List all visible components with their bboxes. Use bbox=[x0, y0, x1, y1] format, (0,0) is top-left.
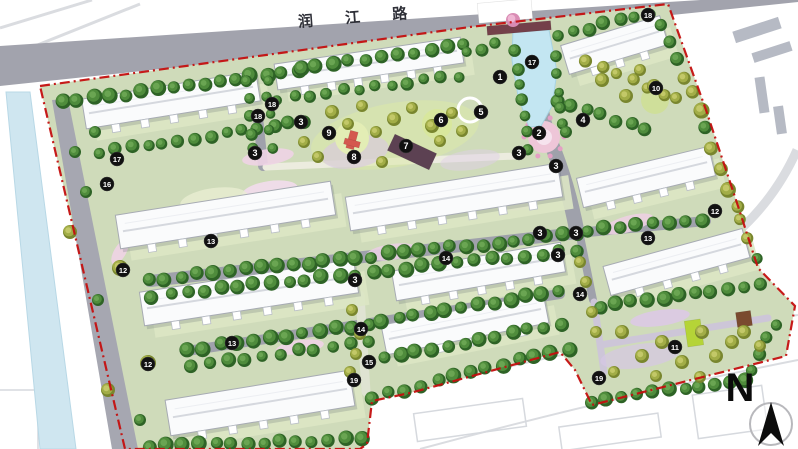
tree-highlight bbox=[289, 260, 295, 266]
tree-highlight bbox=[521, 112, 525, 116]
tree-highlight bbox=[383, 266, 389, 272]
tree-highlight bbox=[146, 293, 152, 299]
tree-highlight bbox=[168, 290, 173, 295]
tree-highlight bbox=[300, 138, 305, 143]
entrance-porch bbox=[171, 320, 180, 329]
tree-highlight bbox=[420, 75, 425, 80]
feature-structure bbox=[736, 311, 753, 328]
tree-highlight bbox=[384, 388, 389, 393]
entrance-porch bbox=[477, 286, 486, 295]
tree-highlight bbox=[672, 54, 678, 60]
marker-3: 3 bbox=[294, 115, 308, 129]
tree-highlight bbox=[376, 316, 383, 323]
marker-3: 3 bbox=[248, 146, 262, 160]
tree-highlight bbox=[213, 439, 218, 444]
tree-highlight bbox=[599, 63, 604, 68]
tree-highlight bbox=[636, 66, 641, 71]
tree-highlight bbox=[705, 287, 711, 293]
tree-highlight bbox=[356, 87, 360, 91]
tree-highlight bbox=[723, 285, 729, 291]
entrance-porch bbox=[663, 279, 673, 289]
tree-highlight bbox=[266, 278, 273, 285]
tree-highlight bbox=[206, 359, 211, 364]
tree-highlight bbox=[347, 339, 353, 345]
tree-highlight bbox=[159, 275, 165, 281]
entrance-porch bbox=[259, 420, 268, 429]
tree-highlight bbox=[461, 340, 466, 345]
tree-highlight bbox=[470, 255, 476, 261]
tree-highlight bbox=[466, 367, 472, 373]
tree-highlight bbox=[626, 296, 632, 302]
tree-highlight bbox=[666, 38, 671, 43]
marker-15: 15 bbox=[362, 355, 376, 369]
tree-highlight bbox=[514, 65, 519, 70]
marker-19: 19 bbox=[347, 373, 361, 387]
tree-highlight bbox=[674, 290, 680, 296]
tree-highlight bbox=[681, 217, 686, 222]
entrance-porch bbox=[293, 302, 302, 311]
tree-highlight bbox=[417, 260, 423, 266]
marker-13: 13 bbox=[641, 231, 655, 245]
tree-highlight bbox=[413, 245, 419, 251]
marker-number: 3 bbox=[573, 228, 578, 238]
entrance-porch bbox=[407, 220, 416, 229]
entrance-porch bbox=[301, 219, 310, 228]
tree-highlight bbox=[331, 322, 337, 328]
tree-highlight bbox=[323, 436, 329, 442]
tree-highlight bbox=[581, 57, 587, 63]
tree-highlight bbox=[716, 165, 722, 171]
tree-highlight bbox=[305, 259, 312, 266]
tree-highlight bbox=[408, 311, 413, 316]
tree-highlight bbox=[91, 128, 96, 133]
tree-highlight bbox=[556, 89, 560, 93]
tree-highlight bbox=[286, 278, 291, 283]
entrance-porch bbox=[270, 224, 279, 233]
tree-highlight bbox=[740, 283, 745, 288]
tree-highlight bbox=[479, 242, 485, 248]
tree-highlight bbox=[688, 87, 694, 93]
marker-6: 6 bbox=[434, 113, 448, 127]
tree-highlight bbox=[611, 117, 617, 123]
tree-highlight bbox=[378, 158, 383, 163]
tree-highlight bbox=[367, 394, 373, 400]
tree-highlight bbox=[276, 68, 282, 74]
tree-highlight bbox=[515, 354, 521, 360]
tree-highlight bbox=[474, 334, 480, 340]
tree-highlight bbox=[346, 368, 351, 373]
entrance-porch bbox=[438, 216, 447, 225]
tree-highlight bbox=[597, 75, 603, 81]
tree-highlight bbox=[71, 96, 77, 102]
context-road-line bbox=[0, 0, 92, 28]
tree-highlight bbox=[136, 86, 142, 92]
tree-highlight bbox=[773, 321, 778, 326]
tree-highlight bbox=[630, 75, 635, 80]
marker-number: 18 bbox=[644, 11, 652, 20]
marker-16: 16 bbox=[100, 177, 114, 191]
tree-highlight bbox=[478, 46, 483, 51]
marker-number: 13 bbox=[207, 237, 215, 246]
tree-highlight bbox=[649, 219, 654, 224]
tree-highlight bbox=[756, 280, 762, 286]
tree-highlight bbox=[246, 95, 251, 100]
marker-3: 3 bbox=[533, 226, 547, 240]
marker-number: 8 bbox=[351, 152, 356, 162]
tree-highlight bbox=[557, 320, 563, 326]
flower-dot bbox=[548, 115, 553, 120]
tree-highlight bbox=[480, 363, 486, 369]
entrance-porch bbox=[615, 58, 625, 68]
tree-highlight bbox=[762, 333, 767, 338]
marker-12: 12 bbox=[116, 263, 130, 277]
tree-highlight bbox=[596, 303, 602, 309]
tree-highlight bbox=[585, 25, 591, 31]
tree-highlight bbox=[642, 295, 648, 301]
entrance-porch bbox=[421, 295, 430, 304]
tree-highlight bbox=[509, 327, 515, 333]
tree-highlight bbox=[723, 185, 730, 192]
tree-highlight bbox=[341, 433, 348, 440]
tree-highlight bbox=[592, 328, 597, 333]
tree-highlight bbox=[701, 123, 707, 129]
tree-highlight bbox=[352, 350, 357, 355]
tree-highlight bbox=[71, 148, 76, 153]
tree-highlight bbox=[400, 387, 406, 393]
marker-9: 9 bbox=[322, 126, 336, 140]
tree-highlight bbox=[727, 337, 733, 343]
marker-number: 12 bbox=[119, 266, 127, 275]
tree-highlight bbox=[524, 236, 529, 241]
tree-highlight bbox=[677, 357, 683, 363]
tree-highlight bbox=[462, 242, 468, 248]
tree-highlight bbox=[696, 105, 703, 112]
tree-highlight bbox=[226, 439, 232, 445]
tree-highlight bbox=[540, 324, 545, 329]
context-building-outline bbox=[0, 390, 38, 449]
marker-17: 17 bbox=[110, 152, 124, 166]
tree-highlight bbox=[396, 314, 401, 319]
entrance-porch bbox=[505, 281, 514, 290]
tree-highlight bbox=[503, 255, 508, 260]
tree-highlight bbox=[344, 120, 349, 125]
tree-highlight bbox=[58, 96, 64, 102]
marker-5: 5 bbox=[474, 105, 488, 119]
tree-highlight bbox=[348, 306, 353, 311]
tree-highlight bbox=[248, 336, 254, 342]
tree-highlight bbox=[110, 144, 116, 150]
entrance-porch bbox=[263, 306, 272, 315]
tree-highlight bbox=[186, 362, 192, 368]
entrance-porch bbox=[202, 316, 211, 325]
tree-highlight bbox=[224, 129, 229, 134]
tree-highlight bbox=[598, 18, 604, 24]
tree-highlight bbox=[153, 83, 160, 90]
tree-highlight bbox=[584, 106, 589, 111]
flower-dot bbox=[558, 146, 563, 151]
marker-number: 3 bbox=[555, 250, 560, 260]
tree-highlight bbox=[192, 268, 198, 274]
tree-highlight bbox=[237, 126, 242, 131]
tree-highlight bbox=[207, 133, 213, 139]
tree-highlight bbox=[617, 15, 623, 21]
tree-highlight bbox=[145, 443, 151, 449]
tree-highlight bbox=[710, 380, 716, 386]
tree-highlight bbox=[523, 128, 528, 133]
tree-highlight bbox=[657, 337, 663, 343]
tree-highlight bbox=[445, 242, 450, 247]
entrance-porch bbox=[449, 290, 458, 299]
marker-number: 14 bbox=[357, 325, 366, 334]
entrance-porch bbox=[685, 181, 695, 191]
marker-number: 7 bbox=[403, 141, 408, 151]
tree-highlight bbox=[261, 440, 266, 445]
tree-highlight bbox=[403, 79, 409, 85]
tree-highlight bbox=[554, 32, 559, 37]
marker-number: 4 bbox=[580, 115, 585, 125]
entrance-porch bbox=[468, 211, 477, 220]
entrance-porch bbox=[147, 243, 156, 252]
tree-highlight bbox=[309, 346, 315, 352]
tree-highlight bbox=[697, 327, 703, 333]
tree-highlight bbox=[426, 308, 433, 315]
tree-highlight bbox=[207, 268, 214, 275]
tree-highlight bbox=[621, 91, 627, 97]
tree-highlight bbox=[371, 82, 376, 87]
tree-highlight bbox=[544, 347, 551, 354]
marker-number: 12 bbox=[711, 207, 719, 216]
marker-3: 3 bbox=[569, 226, 583, 240]
entrance-porch bbox=[659, 187, 669, 197]
tree-highlight bbox=[224, 355, 230, 361]
tree-highlight bbox=[370, 267, 376, 273]
marker-number: 18 bbox=[268, 100, 276, 109]
tree-highlight bbox=[498, 361, 504, 367]
tree-highlight bbox=[435, 376, 441, 382]
marker-7: 7 bbox=[399, 139, 413, 153]
tree-highlight bbox=[617, 327, 623, 333]
entrance-porch bbox=[380, 74, 389, 83]
marker-number: 10 bbox=[652, 84, 660, 93]
context-building bbox=[751, 41, 792, 63]
tree-highlight bbox=[318, 256, 324, 262]
marker-number: 13 bbox=[228, 339, 236, 348]
marker-14: 14 bbox=[573, 287, 587, 301]
entrance-porch bbox=[232, 311, 241, 320]
entrance-porch bbox=[140, 119, 149, 128]
tree-highlight bbox=[630, 13, 635, 18]
tree-highlight bbox=[408, 104, 413, 109]
tree-highlight bbox=[588, 308, 593, 313]
tree-highlight bbox=[610, 298, 616, 304]
tree-highlight bbox=[296, 63, 303, 70]
marker-number: 3 bbox=[537, 228, 542, 238]
tree-highlight bbox=[598, 222, 605, 229]
tree-highlight bbox=[427, 121, 433, 127]
tree-highlight bbox=[103, 385, 109, 391]
tree-highlight bbox=[177, 439, 183, 445]
tree-highlight bbox=[706, 144, 712, 150]
marker-number: 17 bbox=[528, 58, 536, 67]
entrance-porch bbox=[690, 272, 700, 282]
tree-highlight bbox=[409, 346, 415, 352]
tree-highlight bbox=[554, 287, 559, 292]
marker-number: 6 bbox=[438, 115, 443, 125]
tree-highlight bbox=[160, 439, 167, 446]
tree-highlight bbox=[128, 141, 134, 147]
flower-dot bbox=[535, 154, 540, 159]
tree-highlight bbox=[94, 296, 99, 301]
tree-highlight bbox=[298, 329, 303, 334]
marker-number: 16 bbox=[103, 180, 111, 189]
tree-highlight bbox=[242, 263, 248, 269]
marker-14: 14 bbox=[439, 251, 453, 265]
marker-number: 9 bbox=[326, 128, 331, 138]
tree-highlight bbox=[231, 75, 237, 81]
tree-highlight bbox=[122, 92, 127, 97]
tree-highlight bbox=[616, 223, 621, 228]
tree-highlight bbox=[436, 73, 441, 78]
tree-highlight bbox=[680, 74, 686, 80]
tree-highlight bbox=[365, 338, 370, 343]
tree-highlight bbox=[401, 264, 408, 271]
tree-highlight bbox=[553, 97, 559, 103]
tree-highlight bbox=[595, 109, 601, 115]
tree-highlight bbox=[756, 342, 761, 347]
tree-highlight bbox=[200, 287, 206, 293]
tree-highlight bbox=[362, 56, 367, 61]
marker-8: 8 bbox=[347, 150, 361, 164]
tree-highlight bbox=[456, 74, 460, 78]
tree-highlight bbox=[637, 351, 643, 357]
marker-number: 18 bbox=[254, 112, 262, 121]
tree-highlight bbox=[736, 215, 741, 220]
tree-highlight bbox=[396, 349, 403, 356]
tree-highlight bbox=[185, 81, 190, 86]
tree-highlight bbox=[576, 258, 581, 263]
entrance-porch bbox=[227, 105, 236, 114]
marker-19: 19 bbox=[592, 371, 606, 385]
tree-highlight bbox=[240, 355, 246, 361]
tree-highlight bbox=[335, 254, 342, 261]
tree-highlight bbox=[510, 46, 515, 51]
tree-highlight bbox=[265, 77, 269, 81]
entrance-porch bbox=[640, 51, 650, 61]
tree-highlight bbox=[367, 254, 372, 259]
tree-highlight bbox=[263, 93, 267, 97]
tree-highlight bbox=[631, 219, 637, 225]
marker-number: 15 bbox=[365, 358, 373, 367]
tree-highlight bbox=[672, 94, 677, 99]
tree-highlight bbox=[182, 345, 188, 351]
marker-13: 13 bbox=[204, 234, 218, 248]
tree-highlight bbox=[490, 299, 496, 305]
tree-highlight bbox=[652, 372, 657, 377]
tree-highlight bbox=[490, 333, 496, 339]
tree-highlight bbox=[358, 102, 363, 107]
tree-highlight bbox=[194, 438, 201, 445]
marker-number: 11 bbox=[671, 343, 679, 352]
tree-highlight bbox=[573, 247, 579, 253]
entrance-porch bbox=[606, 200, 616, 210]
tree-highlight bbox=[281, 332, 288, 339]
tree-highlight bbox=[584, 228, 589, 233]
tree-highlight bbox=[283, 118, 289, 124]
tree-highlight bbox=[197, 344, 204, 351]
tree-highlight bbox=[439, 305, 446, 312]
tree-highlight bbox=[380, 353, 385, 358]
tree-highlight bbox=[217, 339, 223, 345]
tree-highlight bbox=[444, 342, 449, 347]
tree-highlight bbox=[506, 295, 513, 302]
context-building-outline bbox=[559, 413, 661, 449]
marker-18: 18 bbox=[251, 109, 265, 123]
tree-highlight bbox=[520, 252, 526, 258]
marker-number: 2 bbox=[536, 128, 541, 138]
marker-1: 1 bbox=[493, 70, 507, 84]
tree-highlight bbox=[552, 52, 557, 57]
marker-18: 18 bbox=[265, 97, 279, 111]
tree-highlight bbox=[258, 353, 263, 358]
tree-highlight bbox=[201, 80, 207, 86]
tree-highlight bbox=[453, 258, 458, 263]
tree-highlight bbox=[518, 95, 523, 100]
entrance-porch bbox=[290, 415, 299, 424]
marker-4: 4 bbox=[576, 113, 590, 127]
tree-highlight bbox=[306, 93, 311, 98]
tree-highlight bbox=[463, 48, 467, 52]
entrance-porch bbox=[198, 110, 207, 119]
tree-highlight bbox=[570, 27, 575, 32]
tree-highlight bbox=[389, 114, 395, 120]
tree-highlight bbox=[427, 45, 433, 51]
tree-highlight bbox=[521, 290, 527, 296]
entrance-porch bbox=[528, 201, 537, 210]
tree-highlight bbox=[357, 434, 363, 440]
master-plan: 1233333333456789101112121213131314141415… bbox=[0, 0, 798, 449]
tree-highlight bbox=[316, 271, 323, 278]
tree-highlight bbox=[565, 345, 571, 351]
marker-number: 14 bbox=[576, 290, 585, 299]
tree-highlight bbox=[562, 128, 567, 133]
tree-highlight bbox=[383, 247, 390, 254]
tree-highlight bbox=[459, 40, 464, 45]
tree-highlight bbox=[246, 112, 251, 117]
entrance-porch bbox=[111, 124, 120, 133]
tree-highlight bbox=[300, 277, 305, 282]
tree-highlight bbox=[65, 227, 71, 233]
marker-number: 1 bbox=[497, 72, 502, 82]
tree-highlight bbox=[739, 327, 745, 333]
tree-highlight bbox=[244, 439, 250, 445]
tree-highlight bbox=[96, 150, 101, 155]
entrance-porch bbox=[632, 194, 642, 204]
marker-number: 3 bbox=[298, 117, 303, 127]
tree-highlight bbox=[536, 289, 543, 296]
tree-highlight bbox=[322, 90, 327, 95]
tree-highlight bbox=[336, 271, 343, 278]
tree-highlight bbox=[430, 244, 435, 249]
tree-highlight bbox=[340, 85, 345, 90]
marker-3: 3 bbox=[348, 273, 362, 287]
tree-highlight bbox=[277, 351, 282, 356]
tree-highlight bbox=[443, 41, 449, 47]
tree-highlight bbox=[682, 385, 687, 390]
tree-highlight bbox=[217, 282, 223, 288]
tree-highlight bbox=[448, 109, 453, 114]
entrance-porch bbox=[324, 297, 333, 306]
tree-highlight bbox=[347, 323, 353, 329]
